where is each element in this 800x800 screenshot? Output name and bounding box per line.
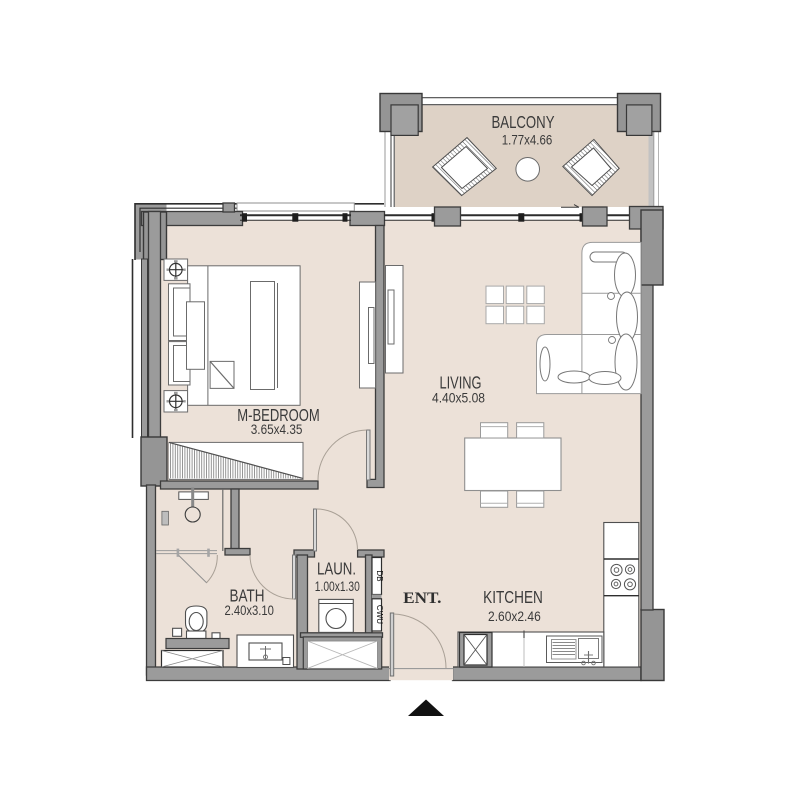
svg-text:DB: DB [375,570,384,581]
svg-text:ENT.: ENT. [403,590,442,607]
svg-text:1.77x4.66: 1.77x4.66 [502,133,553,148]
svg-text:2.40x3.10: 2.40x3.10 [224,603,274,618]
svg-text:BALCONY: BALCONY [492,112,555,132]
svg-text:LAUN.: LAUN. [317,559,356,579]
svg-text:CWU: CWU [375,605,384,624]
svg-text:3.65x4.35: 3.65x4.35 [251,422,303,437]
svg-text:2.60x2.46: 2.60x2.46 [488,609,541,624]
svg-text:KITCHEN: KITCHEN [483,587,543,607]
svg-text:1.00x1.30: 1.00x1.30 [315,579,360,594]
svg-text:4.40x5.08: 4.40x5.08 [432,391,485,406]
